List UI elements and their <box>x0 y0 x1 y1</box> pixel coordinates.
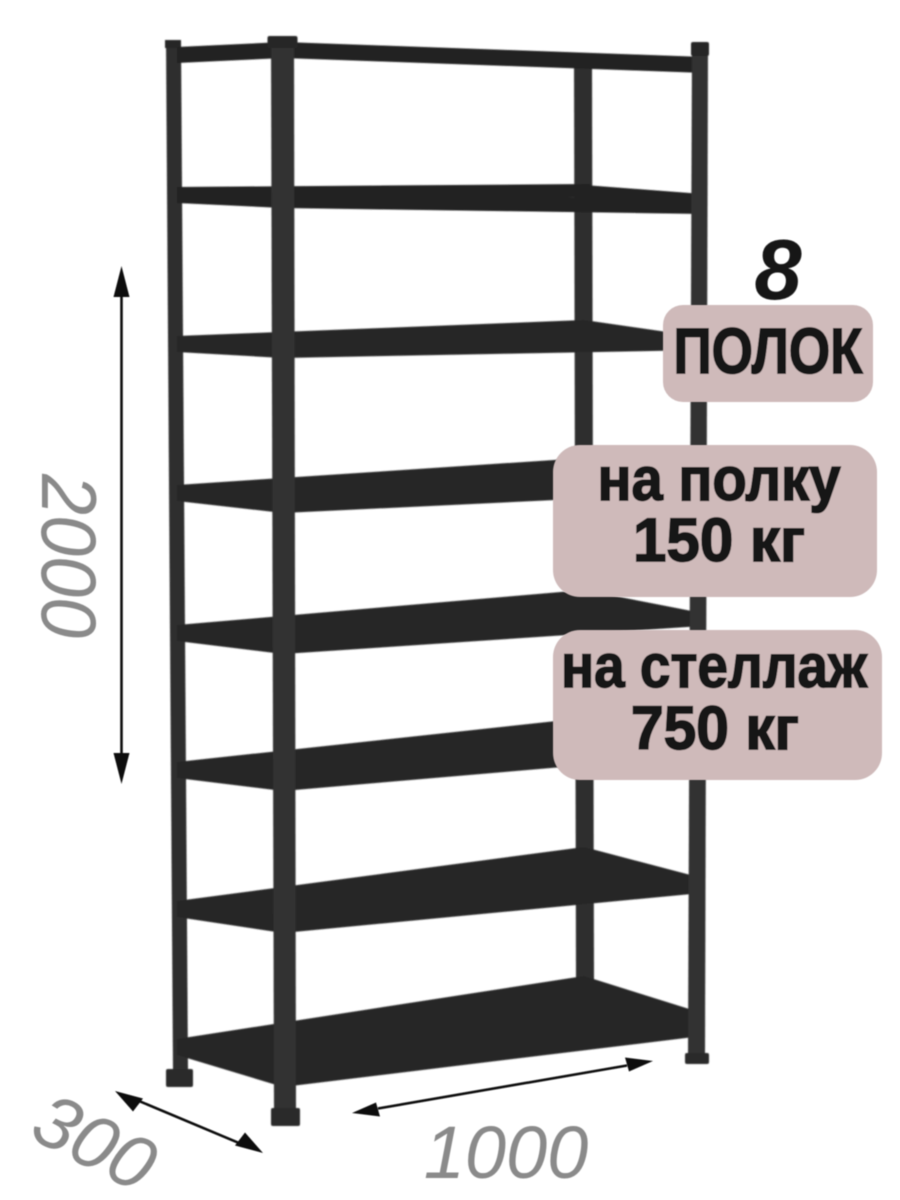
svg-text:150 кг: 150 кг <box>633 506 805 574</box>
svg-text:на стеллаж: на стеллаж <box>561 632 868 700</box>
svg-text:ПОЛОК: ПОЛОК <box>674 315 864 387</box>
svg-text:1000: 1000 <box>424 1111 589 1194</box>
svg-text:2000: 2000 <box>25 473 113 638</box>
svg-text:750 кг: 750 кг <box>631 694 799 762</box>
svg-text:на полку: на полку <box>598 445 841 513</box>
svg-text:8: 8 <box>754 223 802 318</box>
